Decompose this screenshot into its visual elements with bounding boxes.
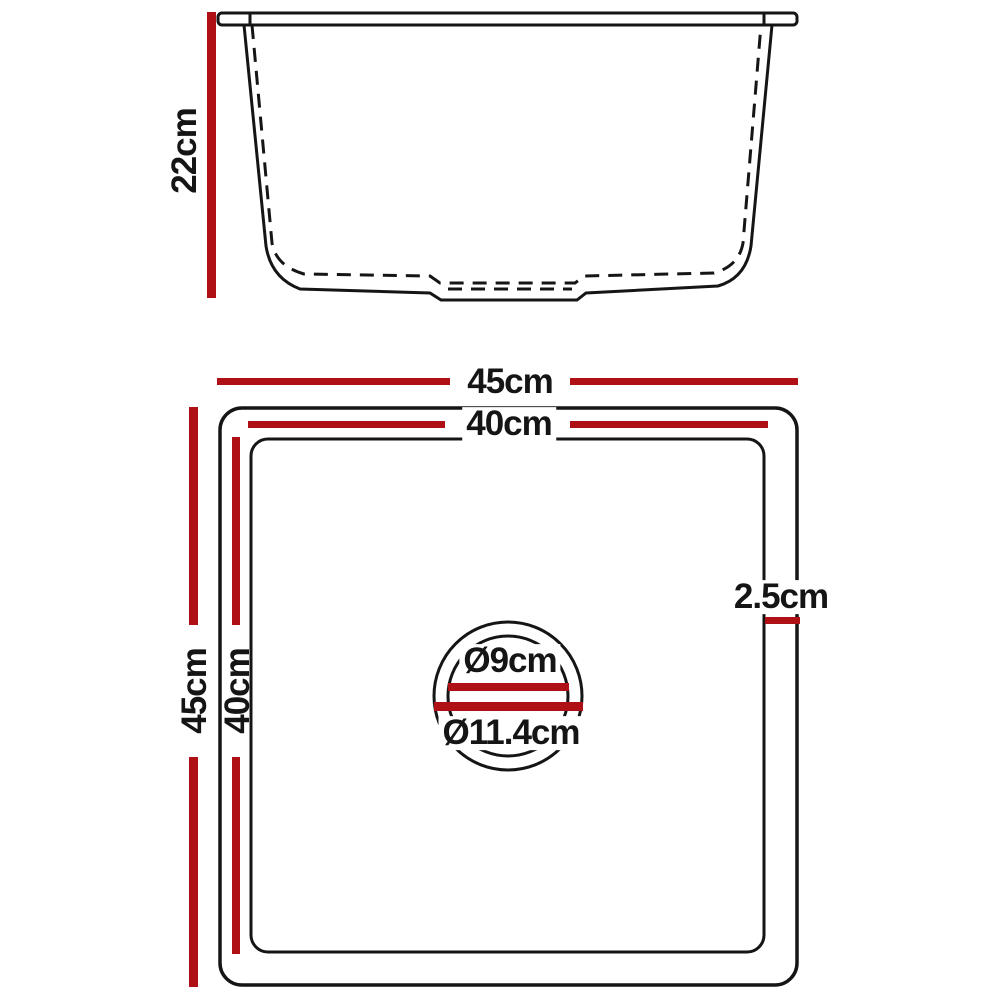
left-inner-height-bar-top: [232, 437, 240, 625]
side-height-label: 22cm: [170, 108, 200, 194]
drain-outer-diameter-bar: [434, 702, 583, 711]
drain-inner-diameter-bar: [448, 683, 569, 691]
left-outer-height-label: 45cm: [180, 648, 210, 734]
drain-outer-diameter-label: Ø11.4cm: [439, 716, 584, 750]
side-view-drawing: [218, 13, 797, 300]
top-outer-width-label: 45cm: [463, 365, 557, 399]
rim-width-label: 2.5cm: [730, 580, 832, 614]
top-inner-width-bar-right: [570, 421, 768, 428]
top-outer-width-bar-right: [570, 378, 798, 385]
line-art: [0, 0, 1000, 1000]
side-view-rim: [218, 13, 797, 25]
left-inner-height-bar-bottom: [232, 757, 240, 954]
rim-width-dimension-bar: [765, 617, 800, 624]
drain-inner-diameter-label: Ø9cm: [459, 644, 560, 678]
top-view-bowl-opening: [251, 439, 764, 952]
side-view-bowl-inner-dashed: [252, 25, 761, 283]
top-inner-width-label: 40cm: [462, 407, 556, 441]
side-height-dimension-bar: [207, 12, 216, 298]
top-view-drawing: [220, 408, 797, 985]
top-view-outer-rim: [220, 408, 797, 985]
side-view-bowl-outline: [244, 25, 772, 300]
left-outer-height-bar-top: [189, 407, 198, 625]
sink-dimension-diagram: 22cm 45cm 40cm 45cm 40cm 2.5cm Ø9cm Ø11.…: [0, 0, 1000, 1000]
top-inner-width-bar-left: [248, 421, 445, 428]
left-outer-height-bar-bottom: [189, 757, 198, 987]
top-outer-width-bar-left: [217, 378, 450, 385]
left-inner-height-label: 40cm: [223, 648, 253, 734]
